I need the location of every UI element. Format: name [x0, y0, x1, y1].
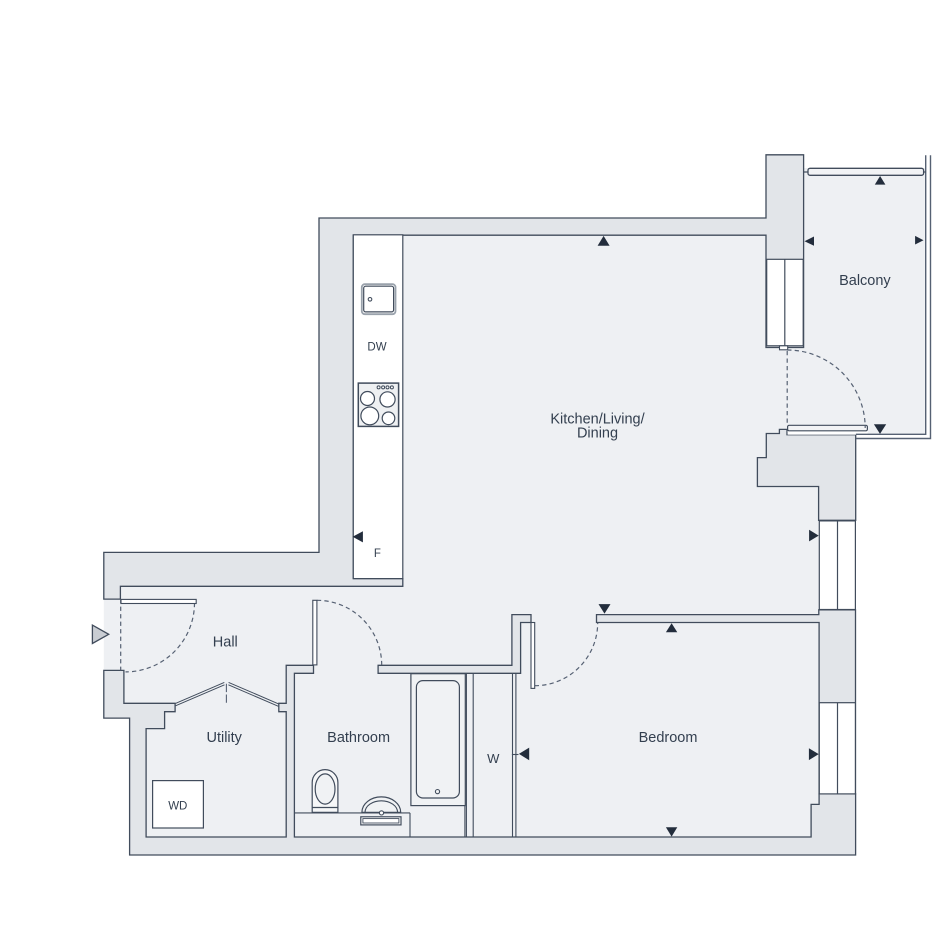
svg-text:W: W: [487, 751, 500, 766]
svg-text:Dining: Dining: [577, 425, 618, 441]
svg-text:Utility: Utility: [206, 730, 242, 746]
svg-text:WD: WD: [168, 801, 187, 813]
svg-text:Balcony: Balcony: [839, 273, 891, 289]
svg-text:DW: DW: [367, 342, 386, 354]
svg-text:F: F: [374, 548, 381, 560]
svg-text:Bedroom: Bedroom: [639, 730, 698, 746]
svg-text:Hall: Hall: [213, 635, 238, 651]
svg-text:Bathroom: Bathroom: [327, 730, 390, 746]
